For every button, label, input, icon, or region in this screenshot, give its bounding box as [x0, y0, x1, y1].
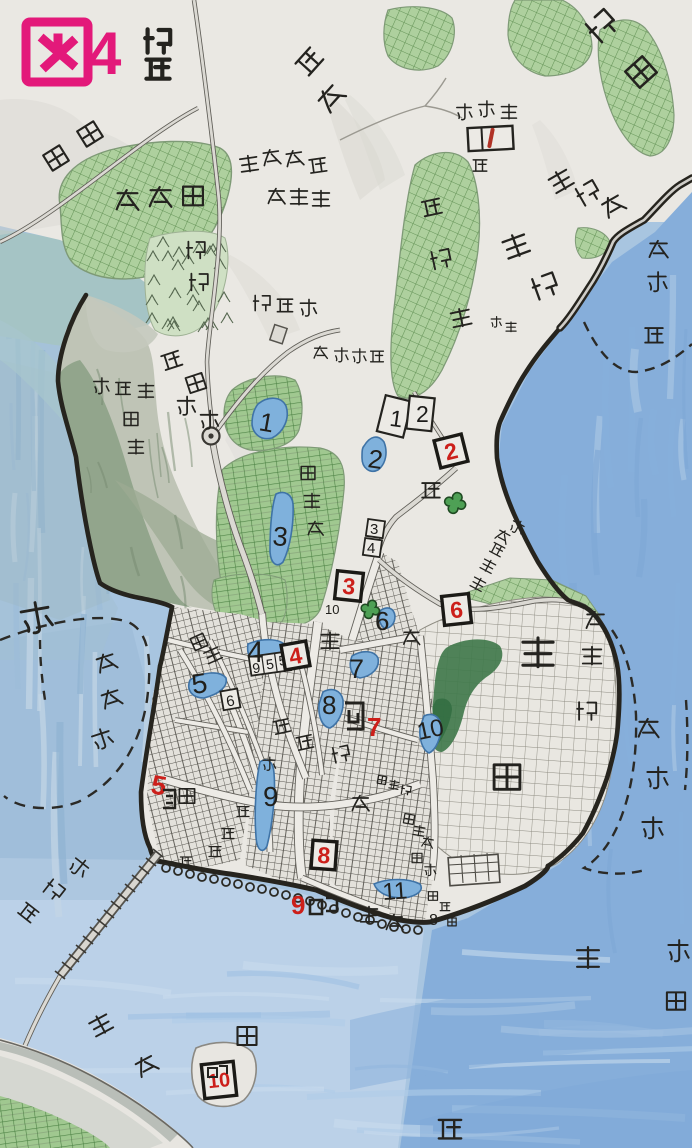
svg-text:8: 8 — [317, 842, 332, 869]
svg-text:10: 10 — [325, 602, 339, 617]
svg-text:2: 2 — [416, 401, 429, 427]
svg-text:4: 4 — [247, 636, 264, 669]
svg-text:9: 9 — [291, 890, 305, 920]
svg-text:8: 8 — [322, 690, 336, 720]
svg-text:6: 6 — [375, 606, 389, 636]
svg-text:9: 9 — [263, 781, 279, 812]
svg-text:10: 10 — [415, 714, 447, 746]
svg-text:7: 7 — [367, 712, 381, 742]
svg-text:3: 3 — [271, 521, 289, 552]
svg-text:6: 6 — [449, 596, 464, 623]
svg-text:3: 3 — [341, 573, 356, 600]
svg-text:11: 11 — [382, 877, 409, 906]
svg-text:4: 4 — [367, 540, 375, 557]
svg-text:8: 8 — [429, 912, 438, 929]
svg-text:3: 3 — [370, 521, 378, 538]
svg-text:7: 7 — [349, 654, 364, 684]
svg-text:4: 4 — [88, 20, 122, 87]
